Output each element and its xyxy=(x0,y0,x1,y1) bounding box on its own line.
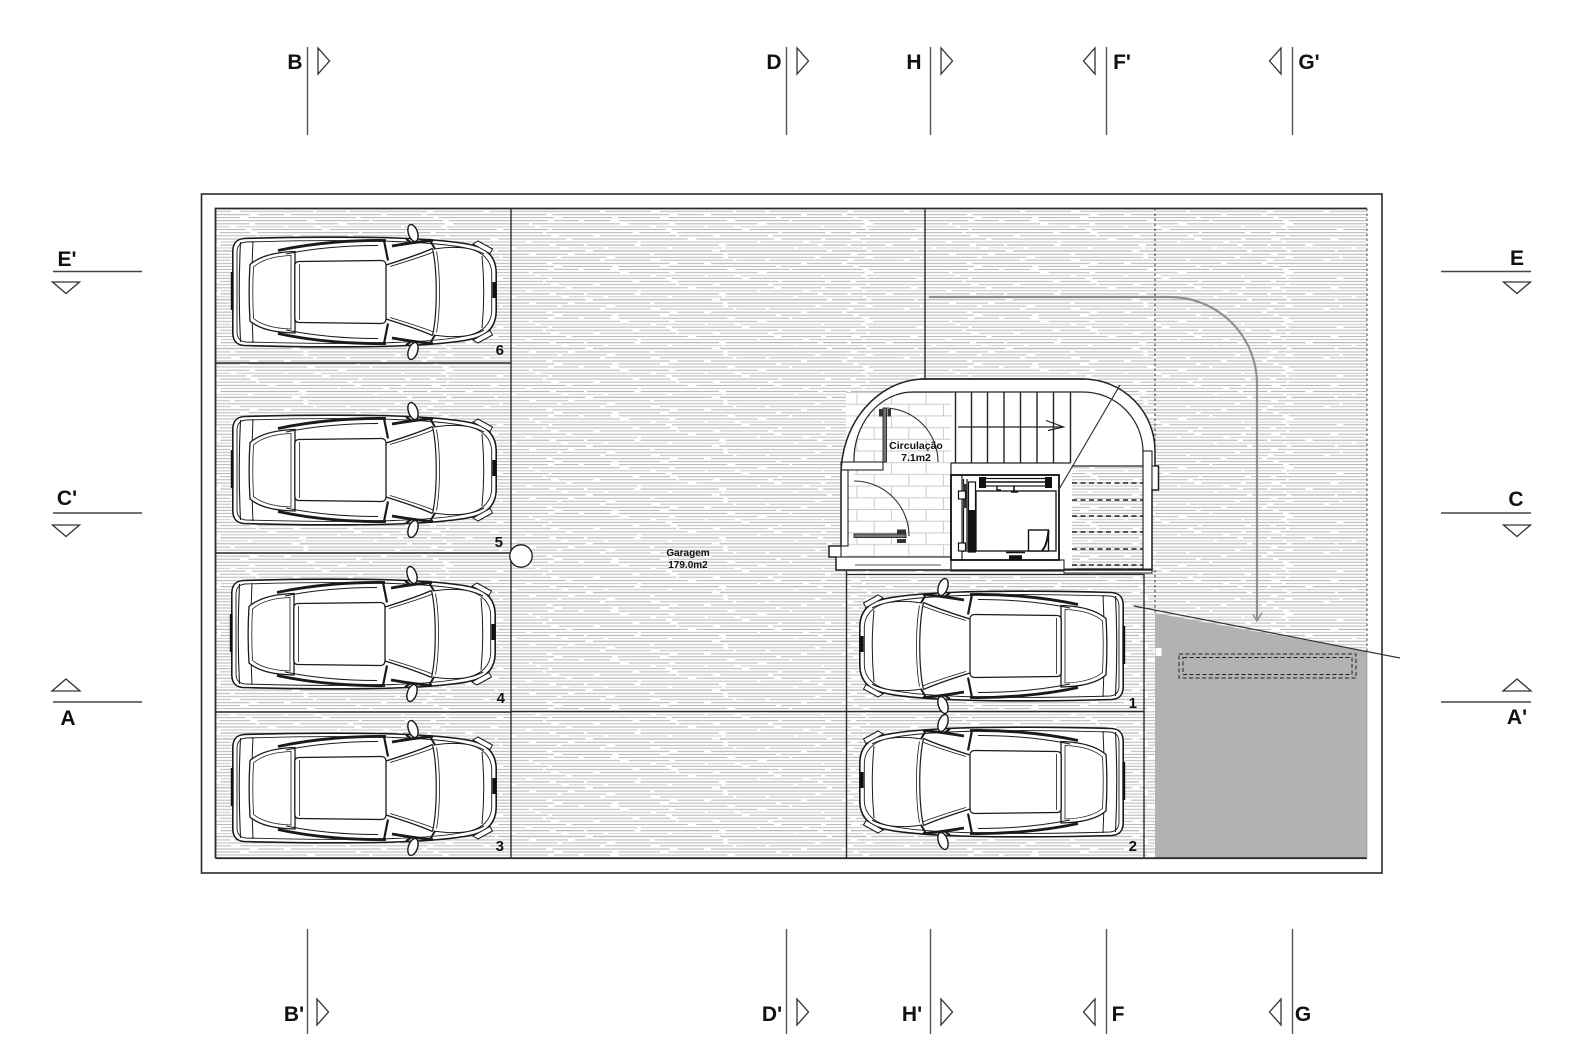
svg-text:B: B xyxy=(287,51,302,74)
svg-text:C': C' xyxy=(57,487,77,510)
svg-text:7.1m2: 7.1m2 xyxy=(901,452,931,464)
svg-text:H: H xyxy=(906,51,921,74)
svg-text:G': G' xyxy=(1298,51,1319,74)
svg-text:2: 2 xyxy=(1129,838,1137,855)
svg-text:H': H' xyxy=(902,1003,922,1026)
svg-text:Garagem: Garagem xyxy=(666,548,709,559)
svg-text:Circulação: Circulação xyxy=(889,440,943,452)
svg-text:1: 1 xyxy=(1129,695,1137,712)
svg-text:3: 3 xyxy=(496,838,504,855)
svg-text:A: A xyxy=(60,707,75,730)
svg-text:D': D' xyxy=(762,1003,782,1026)
svg-text:E: E xyxy=(1510,247,1524,270)
svg-text:4: 4 xyxy=(497,690,506,707)
svg-text:D: D xyxy=(766,51,781,74)
svg-text:C: C xyxy=(1508,488,1523,511)
svg-text:5: 5 xyxy=(495,534,503,551)
svg-text:F: F xyxy=(1112,1003,1125,1026)
svg-text:179.0m2: 179.0m2 xyxy=(668,560,708,571)
svg-text:6: 6 xyxy=(496,342,504,359)
svg-text:E': E' xyxy=(57,248,76,271)
svg-text:F': F' xyxy=(1113,51,1131,74)
svg-text:A': A' xyxy=(1507,706,1527,729)
svg-text:B': B' xyxy=(284,1003,304,1026)
svg-text:G: G xyxy=(1295,1003,1311,1026)
